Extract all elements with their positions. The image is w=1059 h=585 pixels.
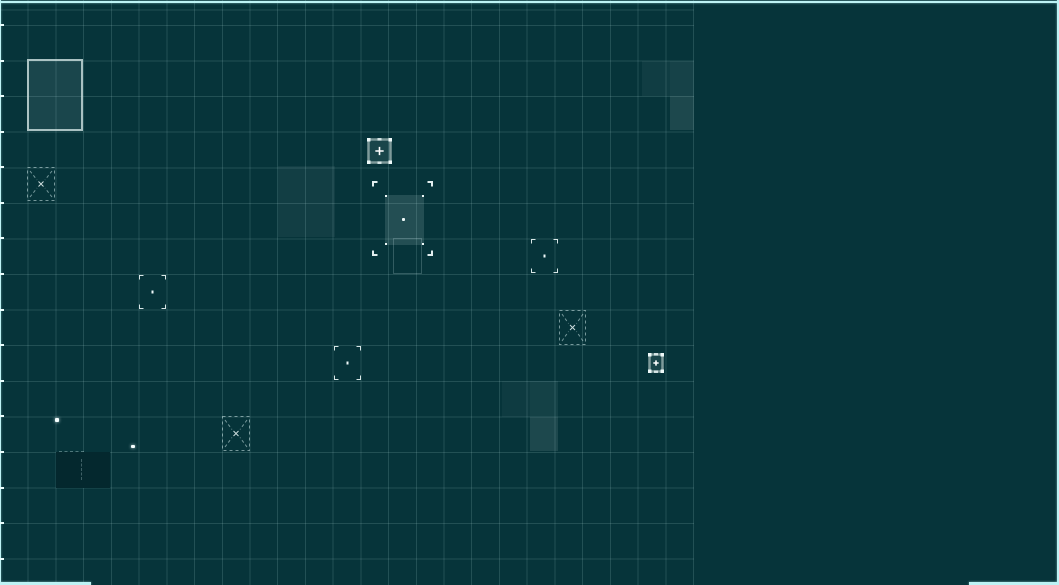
row-tick (0, 131, 4, 133)
row-tick (0, 415, 4, 417)
viewport-frame-layer (0, 0, 1059, 585)
row-tick (0, 60, 4, 62)
viewport-border-left (0, 0, 1, 585)
viewport-border-top (0, 1, 1059, 3)
row-tick (0, 237, 4, 239)
row-tick (0, 309, 4, 311)
row-tick (0, 487, 4, 489)
game-map (0, 0, 1059, 585)
row-tick (0, 273, 4, 275)
row-tick (0, 344, 4, 346)
row-tick (0, 522, 4, 524)
row-tick (0, 95, 4, 97)
row-tick (0, 202, 4, 204)
row-tick (0, 451, 4, 453)
row-tick (0, 166, 4, 168)
row-tick (0, 380, 4, 382)
row-tick (0, 24, 4, 26)
row-tick (0, 558, 4, 560)
